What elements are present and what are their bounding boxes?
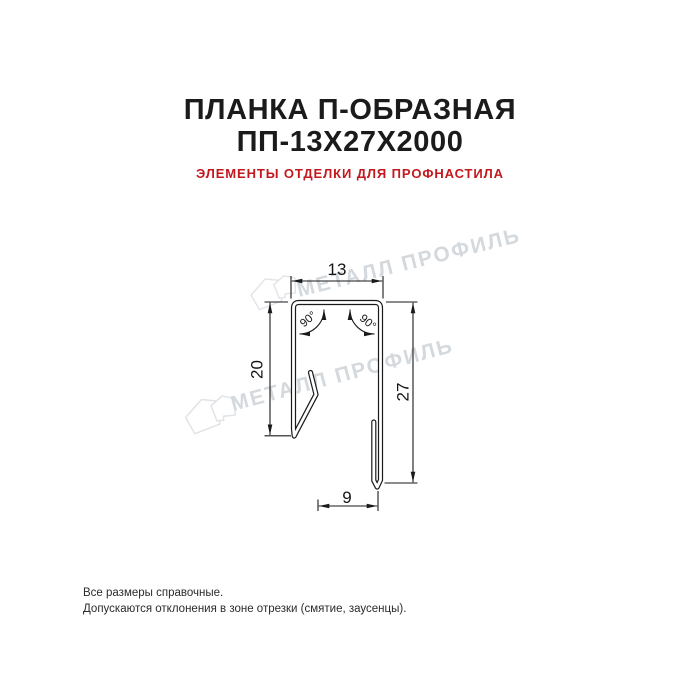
page: ПЛАНКА П-ОБРАЗНАЯ ПП-13Х27Х2000 ЭЛЕМЕНТЫ…: [0, 0, 700, 700]
footer-notes: Все размеры справочные. Допускаются откл…: [83, 586, 406, 617]
angle-label-left: 90°: [298, 310, 319, 330]
dimension-label-top: 13: [328, 260, 347, 279]
dimension-left-height: [265, 302, 292, 436]
dimension-label-right: 27: [394, 383, 413, 402]
footer-note-1: Все размеры справочные.: [83, 586, 406, 602]
dimension-label-bottom: 9: [342, 488, 351, 507]
watermark-instance-top: МЕТАЛЛ ПРОФИЛЬ: [248, 224, 523, 311]
footer-note-2: Допускаются отклонения в зоне отрезки (с…: [83, 602, 406, 618]
dimension-label-left: 20: [248, 360, 267, 379]
watermark-instance-middle: МЕТАЛЛ ПРОФИЛЬ: [182, 334, 456, 435]
